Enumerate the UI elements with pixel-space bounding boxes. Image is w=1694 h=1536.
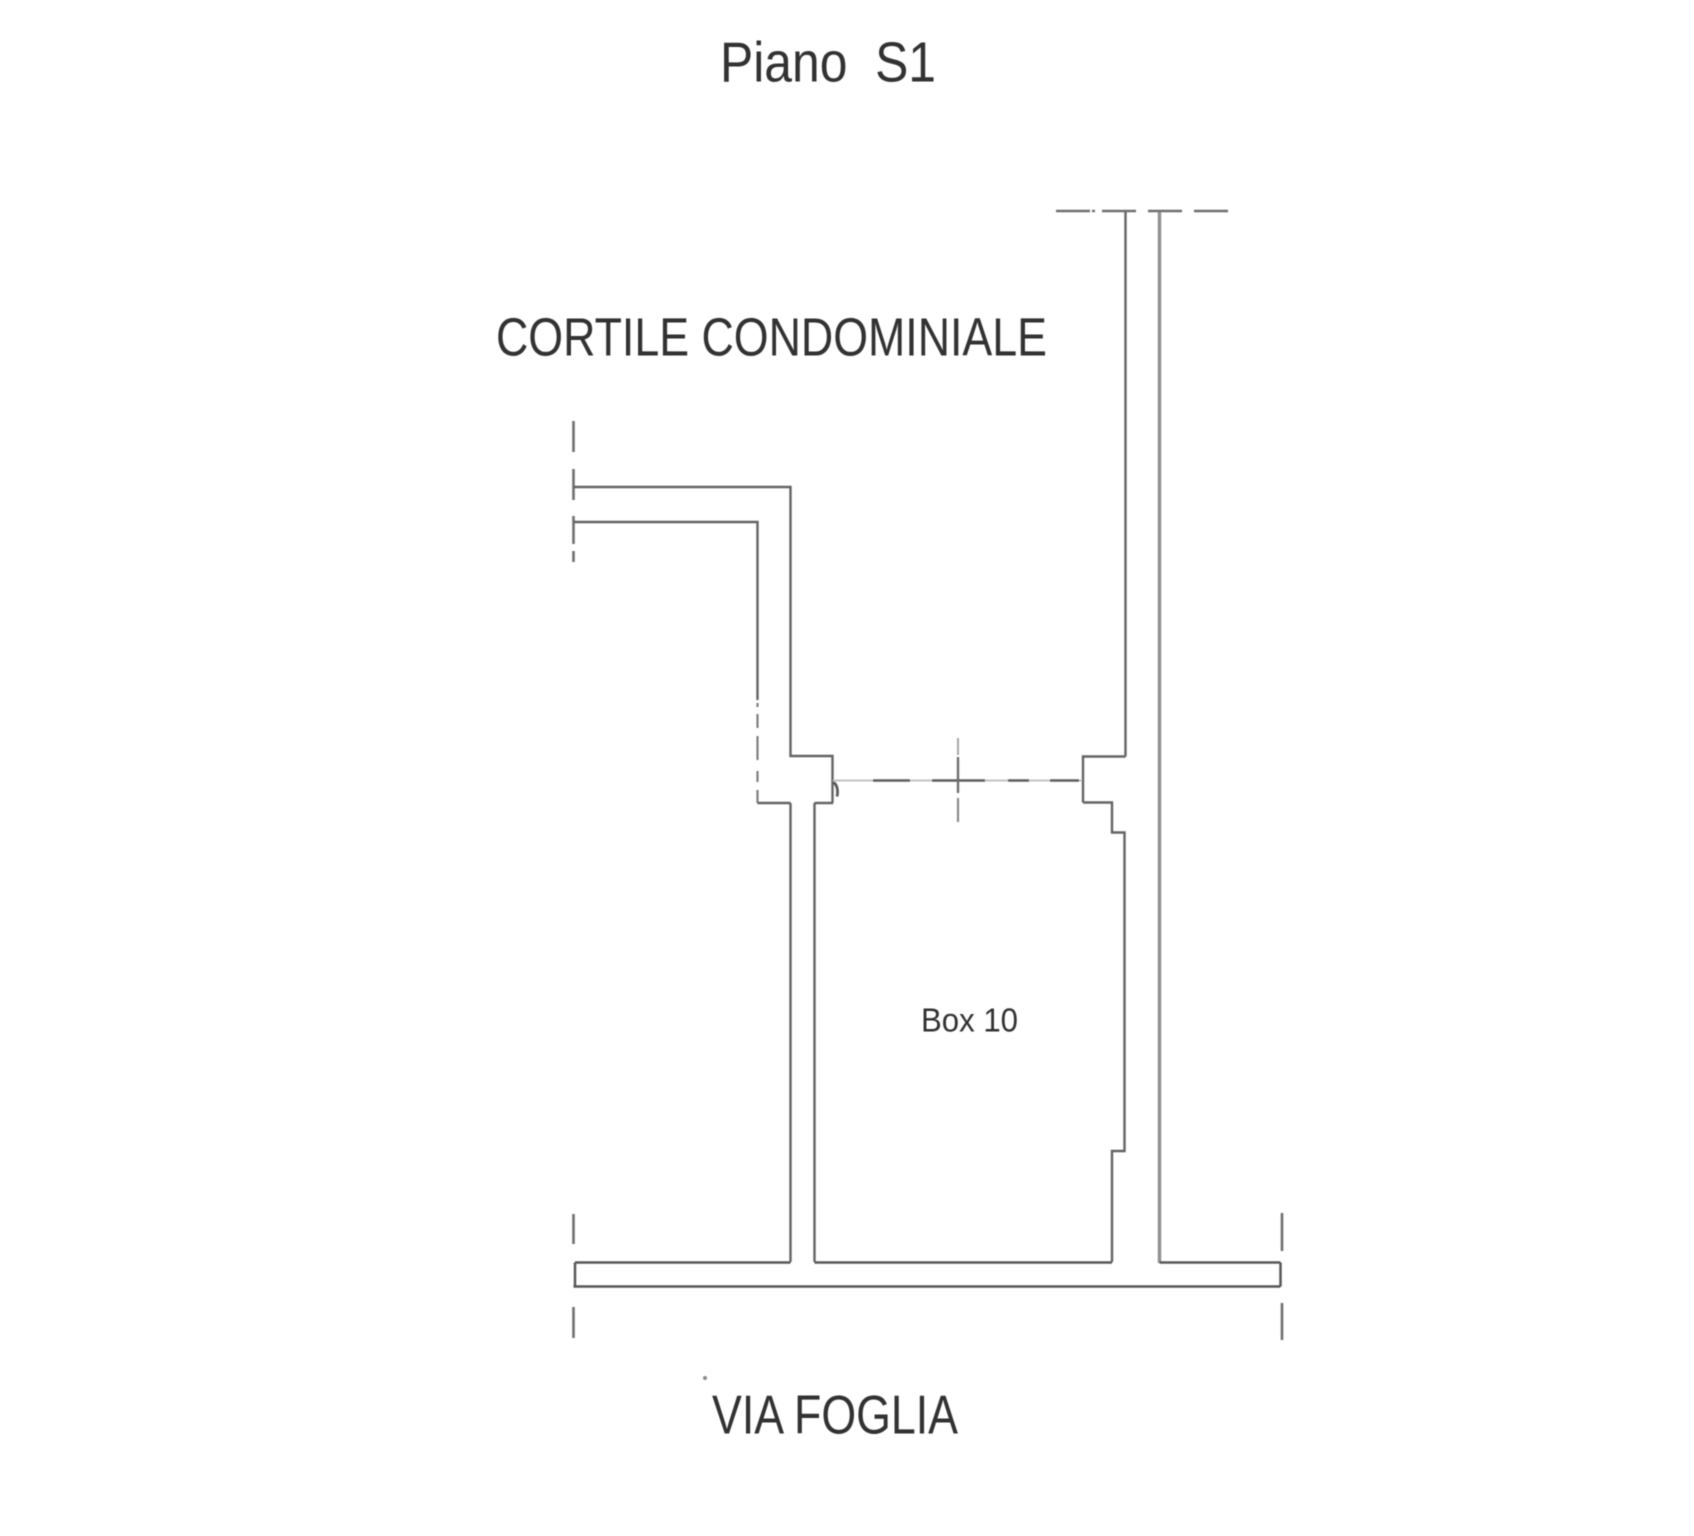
svg-text:Piano S1: Piano S1 xyxy=(720,31,936,95)
svg-text:VIA FOGLIA: VIA FOGLIA xyxy=(712,1384,958,1446)
svg-text:Box 10: Box 10 xyxy=(921,1003,1018,1040)
svg-text:CORTILE CONDOMINIALE: CORTILE CONDOMINIALE xyxy=(496,308,1047,368)
